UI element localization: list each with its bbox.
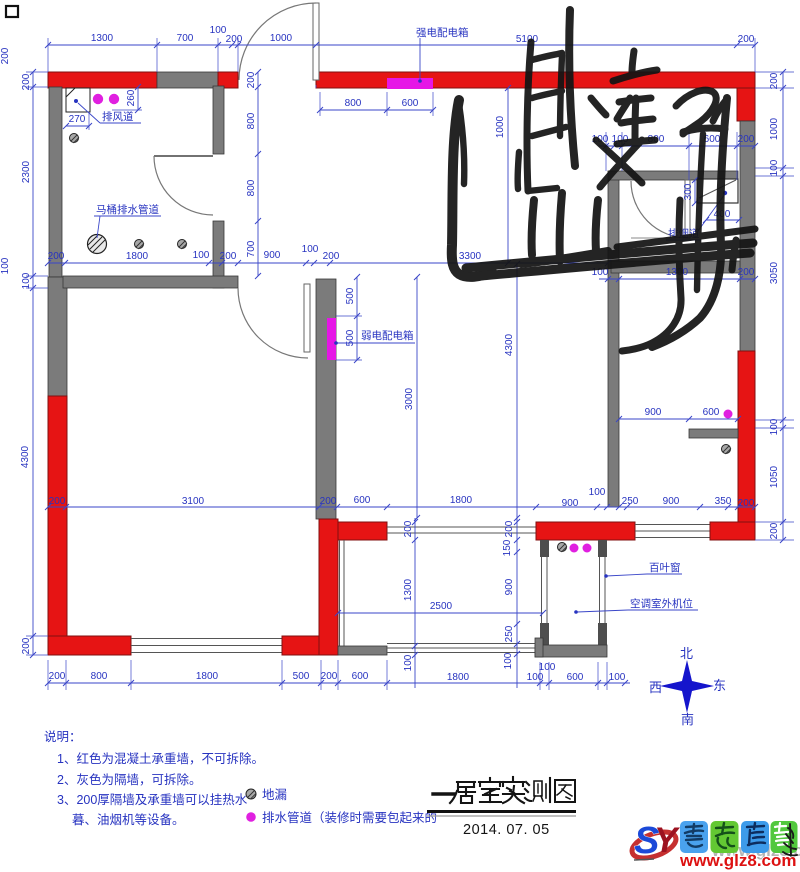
svg-text:800: 800 [246, 112, 257, 129]
svg-text:900: 900 [504, 578, 515, 595]
svg-text:100: 100 [21, 272, 32, 289]
svg-text:1300: 1300 [91, 33, 114, 44]
svg-text:200: 200 [49, 496, 66, 507]
svg-text:200: 200 [769, 72, 780, 89]
svg-text:2、灰色为隔墙，可拆除。: 2、灰色为隔墙，可拆除。 [57, 772, 201, 787]
svg-text:900: 900 [562, 498, 579, 509]
svg-text:200: 200 [21, 637, 32, 654]
svg-text:1、红色为混凝土承重墙，不可拆除。: 1、红色为混凝土承重墙，不可拆除。 [57, 751, 264, 766]
svg-text:300: 300 [683, 183, 694, 200]
svg-text:100: 100 [0, 257, 11, 274]
svg-text:1050: 1050 [769, 465, 780, 488]
svg-text:1800: 1800 [196, 671, 219, 682]
svg-text:200: 200 [320, 496, 337, 507]
svg-text:600: 600 [354, 495, 371, 506]
svg-text:350: 350 [715, 496, 732, 507]
svg-text:1800: 1800 [450, 495, 473, 506]
svg-text:说明：: 说明： [44, 729, 82, 744]
svg-text:200: 200 [769, 522, 780, 539]
svg-text:200: 200 [246, 71, 257, 88]
svg-text:弱电配电箱: 弱电配电箱 [361, 329, 414, 342]
svg-text:马桶排水管道: 马桶排水管道 [96, 203, 159, 216]
svg-text:www.glz8.com: www.glz8.com [679, 851, 797, 870]
svg-text:1300: 1300 [403, 578, 414, 601]
svg-text:200: 200 [226, 34, 243, 45]
svg-text:北: 北 [680, 646, 693, 661]
svg-text:4300: 4300 [20, 445, 31, 468]
svg-text:200: 200 [738, 498, 755, 509]
svg-text:250: 250 [622, 496, 639, 507]
svg-text:南: 南 [681, 712, 694, 727]
svg-text:东: 东 [713, 678, 726, 693]
svg-text:Y: Y [654, 821, 680, 860]
svg-text:100: 100 [769, 159, 780, 176]
svg-text:地漏: 地漏 [262, 787, 287, 802]
svg-text:1800: 1800 [126, 251, 149, 262]
svg-text:100: 100 [210, 25, 227, 36]
svg-text:900: 900 [645, 407, 662, 418]
svg-text:1000: 1000 [270, 33, 293, 44]
svg-text:900: 900 [264, 250, 281, 261]
svg-text:700: 700 [246, 240, 257, 257]
svg-text:5100: 5100 [516, 34, 539, 45]
svg-text:200: 200 [220, 251, 237, 262]
svg-text:200: 200 [403, 520, 414, 537]
svg-text:500: 500 [345, 287, 356, 304]
svg-text:600: 600 [704, 134, 721, 145]
svg-text:百叶窗: 百叶窗 [649, 561, 681, 574]
svg-text:150: 150 [502, 539, 513, 556]
svg-text:200: 200 [323, 251, 340, 262]
svg-text:100: 100 [503, 652, 514, 669]
svg-text:3000: 3000 [404, 387, 415, 410]
svg-text:西: 西 [649, 680, 662, 695]
svg-text:200: 200 [21, 73, 32, 90]
svg-text:100: 100 [403, 654, 414, 671]
svg-text:200: 200 [738, 134, 755, 145]
svg-text:800: 800 [345, 98, 362, 109]
svg-text:260: 260 [126, 89, 137, 106]
svg-text:200: 200 [321, 671, 338, 682]
svg-text:800: 800 [246, 179, 257, 196]
svg-text:1000: 1000 [769, 117, 780, 140]
svg-text:2014. 07. 05: 2014. 07. 05 [463, 822, 550, 838]
svg-text:100: 100 [589, 487, 606, 498]
svg-text:空调室外机位: 空调室外机位 [630, 597, 693, 610]
svg-text:200: 200 [504, 520, 515, 537]
svg-text:2300: 2300 [21, 160, 32, 183]
svg-text:100: 100 [527, 672, 544, 683]
svg-text:600: 600 [352, 671, 369, 682]
svg-text:1000: 1000 [495, 115, 506, 138]
svg-text:3100: 3100 [182, 496, 205, 507]
svg-text:3050: 3050 [769, 261, 780, 284]
svg-text:1800: 1800 [447, 672, 470, 683]
svg-text:100: 100 [302, 244, 319, 255]
svg-text:500: 500 [293, 671, 310, 682]
svg-text:600: 600 [402, 98, 419, 109]
svg-text:700: 700 [177, 33, 194, 44]
svg-text:3、200厚隔墙及承重墙可以挂热水: 3、200厚隔墙及承重墙可以挂热水 [57, 792, 248, 807]
svg-text:暮、油烟机等设备。: 暮、油烟机等设备。 [72, 812, 185, 827]
svg-text:600: 600 [703, 407, 720, 418]
svg-text:100: 100 [609, 672, 626, 683]
svg-text:排风道: 排风道 [102, 110, 134, 123]
svg-text:100: 100 [193, 250, 210, 261]
svg-text:600: 600 [567, 672, 584, 683]
svg-text:200: 200 [738, 267, 755, 278]
svg-text:200: 200 [49, 671, 66, 682]
svg-text:2500: 2500 [430, 601, 453, 612]
svg-text:500: 500 [345, 329, 356, 346]
svg-text:200: 200 [0, 47, 11, 64]
svg-text:100: 100 [769, 418, 780, 435]
svg-text:200: 200 [738, 34, 755, 45]
svg-text:800: 800 [91, 671, 108, 682]
svg-text:200: 200 [48, 251, 65, 262]
svg-text:270: 270 [69, 114, 86, 125]
svg-text:3300: 3300 [459, 251, 482, 262]
svg-text:900: 900 [663, 496, 680, 507]
svg-text:4300: 4300 [504, 333, 515, 356]
svg-text:250: 250 [504, 625, 515, 642]
svg-text:强电配电箱: 强电配电箱 [416, 26, 469, 39]
svg-text:排水管道（装修时需要包起来的: 排水管道（装修时需要包起来的 [262, 810, 437, 825]
